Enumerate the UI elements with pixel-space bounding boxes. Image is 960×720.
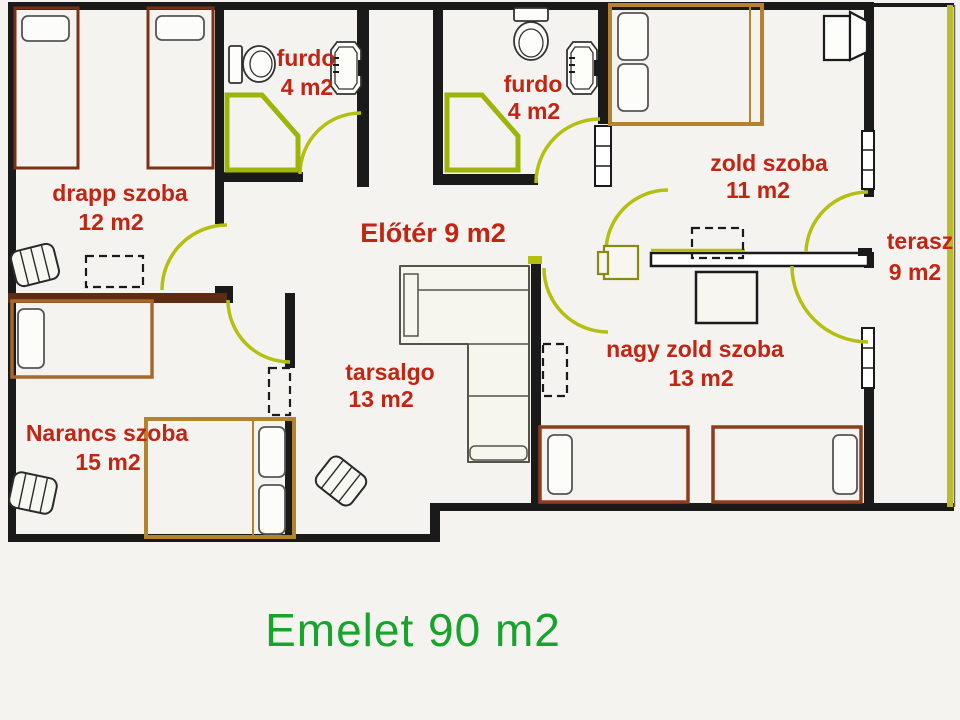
label-terasz-area: 9 m2 xyxy=(889,259,941,285)
wall-drapp-bathroom xyxy=(215,2,224,224)
bed-nagyzold-1 xyxy=(540,427,688,502)
toilet-icon-right xyxy=(514,8,548,60)
divider-end-block xyxy=(858,248,872,256)
label-tarsalgo-name: tarsalgo xyxy=(345,359,434,385)
shower-icon-left xyxy=(227,95,298,170)
dashed-cabinet-nagyzold xyxy=(543,344,567,396)
wall-bathroom1-bottom xyxy=(215,172,303,182)
armchair-tarsalgo xyxy=(313,453,370,508)
floor-title: Emelet 90 m2 xyxy=(265,604,561,656)
pillow xyxy=(259,485,285,534)
wall-bathroom2-left xyxy=(433,2,443,185)
terrace-top-line xyxy=(874,3,954,7)
door-arc-drapp xyxy=(162,225,227,290)
wall-bottom-right xyxy=(430,503,954,511)
divider-wall xyxy=(651,248,872,266)
bed-zold xyxy=(610,5,762,124)
door-jamb-bathroom2 xyxy=(595,126,611,186)
pillow xyxy=(618,13,648,60)
pillow xyxy=(548,435,572,494)
pillow xyxy=(833,435,857,494)
wall-right-4 xyxy=(864,388,874,511)
tv-cabinet-icon xyxy=(824,12,867,60)
pillow xyxy=(618,64,648,111)
wall-cap-olive xyxy=(528,256,542,264)
armchair-narancs xyxy=(8,471,59,515)
dashed-cabinet-drapp xyxy=(86,256,143,287)
table xyxy=(696,272,757,323)
door-arc-nagyzold xyxy=(544,268,608,332)
bed-drapp-2 xyxy=(148,8,213,168)
divider-bar xyxy=(651,253,868,266)
pillow xyxy=(22,16,69,41)
label-drapp-name: drapp szoba xyxy=(52,180,188,206)
cabinet xyxy=(598,246,638,279)
door-arc-narancs xyxy=(228,300,290,362)
toilet-icon-left xyxy=(229,46,275,83)
pillow xyxy=(156,16,204,40)
bed-nagyzold-2 xyxy=(713,427,861,502)
label-furdo-right-name: furdo xyxy=(504,71,563,97)
label-drapp-area: 12 m2 xyxy=(78,209,143,235)
wall-narancs-right-upper xyxy=(285,293,295,368)
pillow xyxy=(259,427,285,477)
label-nagyzold-area: 13 m2 xyxy=(668,365,733,391)
label-nagyzold-name: nagy zold szoba xyxy=(606,336,784,362)
label-furdo-left-area: 4 m2 xyxy=(281,74,333,100)
door-arc-zold xyxy=(606,190,668,252)
window-right-lower xyxy=(862,328,874,388)
door-arc-terasz-upper xyxy=(806,192,868,252)
terrace-boundary xyxy=(874,3,955,507)
door-arc-terasz-lower xyxy=(792,266,868,342)
label-zold-area: 11 m2 xyxy=(726,177,790,203)
bed-narancs-single xyxy=(12,301,152,377)
bed-drapp-1 xyxy=(15,8,78,168)
terrace-right-line xyxy=(947,5,953,507)
armchair-drapp xyxy=(9,242,60,288)
door-arc-bathroom1 xyxy=(300,113,361,174)
window-right-upper xyxy=(862,131,874,189)
door-arc-bathroom2 xyxy=(536,119,600,183)
wall-bathroom1-right xyxy=(357,2,369,187)
floor-plan: drapp szoba 12 m2 furdo 4 m2 furdo 4 m2 … xyxy=(0,0,960,720)
label-tarsalgo-area: 13 m2 xyxy=(348,386,413,412)
label-zold-name: zold szoba xyxy=(710,150,828,176)
label-narancs-name: Narancs szoba xyxy=(26,420,189,446)
pillow xyxy=(18,309,44,368)
label-narancs-area: 15 m2 xyxy=(75,449,140,475)
label-furdo-left-name: furdo xyxy=(277,45,336,71)
label-eloter: Előtér 9 m2 xyxy=(360,218,506,248)
label-terasz-name: terasz xyxy=(887,228,953,254)
label-furdo-right-area: 4 m2 xyxy=(508,98,560,124)
dashed-cabinet-narancs xyxy=(269,368,290,415)
wall-bathroom2-bottom xyxy=(433,174,538,185)
